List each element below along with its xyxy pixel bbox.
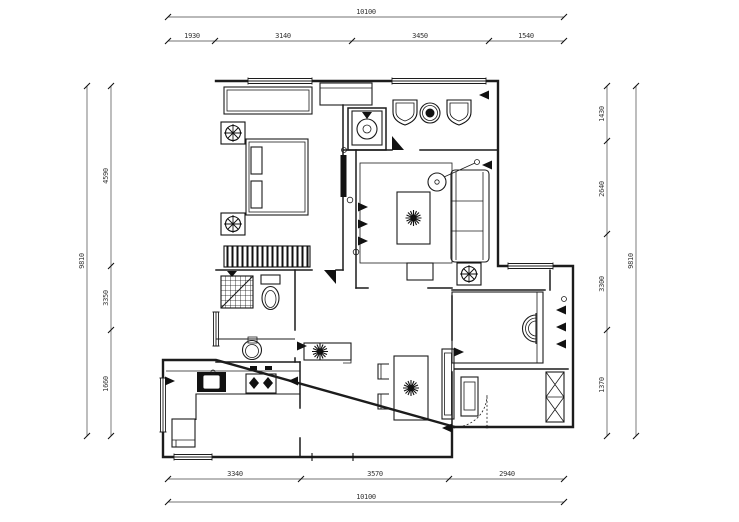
balcony-door-leaf-icon	[392, 136, 404, 150]
floor-plan-svg: 10100 1930 3140 3450 1540 3340 3570 2940…	[0, 0, 739, 522]
hall-console	[304, 343, 351, 363]
dim-right-3: 3300	[598, 276, 606, 292]
wall-sconce-icon	[556, 306, 566, 315]
kitchen-sconce-icon	[165, 377, 175, 386]
door-leaves	[324, 136, 404, 284]
dim-top-4: 1540	[518, 32, 534, 40]
stool	[407, 263, 433, 280]
corner-sconce-icon	[482, 161, 492, 170]
leisure-chair-icon	[393, 100, 417, 125]
ceiling-lamp-icon	[457, 263, 481, 285]
wardrobe-inner	[227, 90, 309, 111]
dim-top-1: 1930	[184, 32, 200, 40]
sconce-dot	[347, 197, 353, 203]
tv-icon	[341, 155, 347, 197]
vanity	[216, 337, 295, 360]
dim-left-1: 4590	[102, 168, 110, 184]
master-bedroom	[221, 83, 372, 267]
living-room	[360, 160, 492, 286]
nightstand-lamp-icon	[221, 213, 245, 235]
coffee-table	[397, 192, 430, 244]
wall-sconce-icon	[358, 203, 368, 212]
pillow	[251, 147, 262, 174]
dim-bottom-total: 10100	[356, 493, 376, 501]
tv-wall	[341, 148, 369, 255]
bedroom-window	[248, 78, 312, 85]
plant-icon	[312, 344, 328, 360]
bedroom2-window	[508, 263, 553, 270]
kitchen-south-window	[174, 454, 212, 461]
dim-left-2: 3350	[102, 290, 110, 306]
balcony-sconce-icon	[479, 91, 489, 100]
nightstand-lamp-icon	[221, 122, 245, 144]
leisure-chair-icon	[447, 100, 471, 125]
bathroom	[216, 271, 307, 360]
entry-door-swing	[455, 395, 487, 427]
dim-right-4: 1370	[598, 377, 606, 393]
plant-icon	[406, 210, 422, 226]
pillow	[251, 181, 262, 208]
counter-edge	[196, 394, 300, 420]
wardrobe2-icon	[546, 372, 564, 422]
dim-bottom-1: 3340	[227, 470, 243, 478]
interior-walls	[216, 105, 568, 457]
dim-right-1: 1430	[598, 106, 606, 122]
bed	[246, 139, 308, 215]
wall-sconce-icon	[358, 220, 368, 229]
dining-room	[304, 343, 487, 433]
desk	[461, 377, 478, 416]
dim-right-total: 9810	[627, 253, 635, 269]
dim-top-total: 10100	[356, 8, 376, 16]
toilet-icon	[261, 275, 280, 310]
bedroom-2	[452, 292, 567, 422]
floor-lamp-icon	[428, 160, 492, 192]
outer-walls	[163, 81, 573, 461]
table-plant-icon	[426, 109, 435, 118]
kitchen-door-leaf-icon	[288, 377, 298, 386]
shower	[221, 271, 253, 308]
dim-bottom-2: 3570	[367, 470, 383, 478]
dim-top-2: 3140	[275, 32, 291, 40]
sconce-dot	[562, 297, 567, 302]
wall-sconce-icon	[556, 340, 566, 349]
floor-plan-canvas: 10100 1930 3140 3450 1540 3340 3570 2940…	[0, 0, 739, 522]
dim-left-total: 9810	[78, 253, 86, 269]
sink-icon	[197, 370, 226, 392]
dim-left-3: 1660	[102, 376, 110, 392]
wall-sconce-icon	[358, 237, 368, 246]
dining-chair-icon	[378, 364, 389, 379]
dim-right-2: 2640	[598, 181, 606, 197]
plant-icon	[403, 380, 419, 396]
wall-sconce-icon	[556, 323, 566, 332]
rug-outline	[360, 163, 452, 263]
bathroom-window	[213, 312, 220, 346]
kitchen-window	[160, 378, 167, 432]
dim-bottom-3: 2940	[499, 470, 515, 478]
sofa	[451, 170, 489, 262]
wardrobe	[224, 87, 312, 114]
washing-machine-icon	[352, 111, 382, 145]
top-cabinet	[320, 83, 372, 105]
bed2	[452, 292, 543, 363]
pillow-icon	[523, 313, 537, 344]
dresser-hatched	[224, 246, 310, 267]
fridge-icon	[172, 419, 195, 447]
bed-mattress	[249, 142, 305, 212]
dim-top-3: 3450	[412, 32, 428, 40]
bedroom-door-leaf-icon	[324, 270, 336, 284]
bedroom2-door-leaf-icon	[454, 348, 464, 357]
balcony-window	[392, 78, 486, 85]
